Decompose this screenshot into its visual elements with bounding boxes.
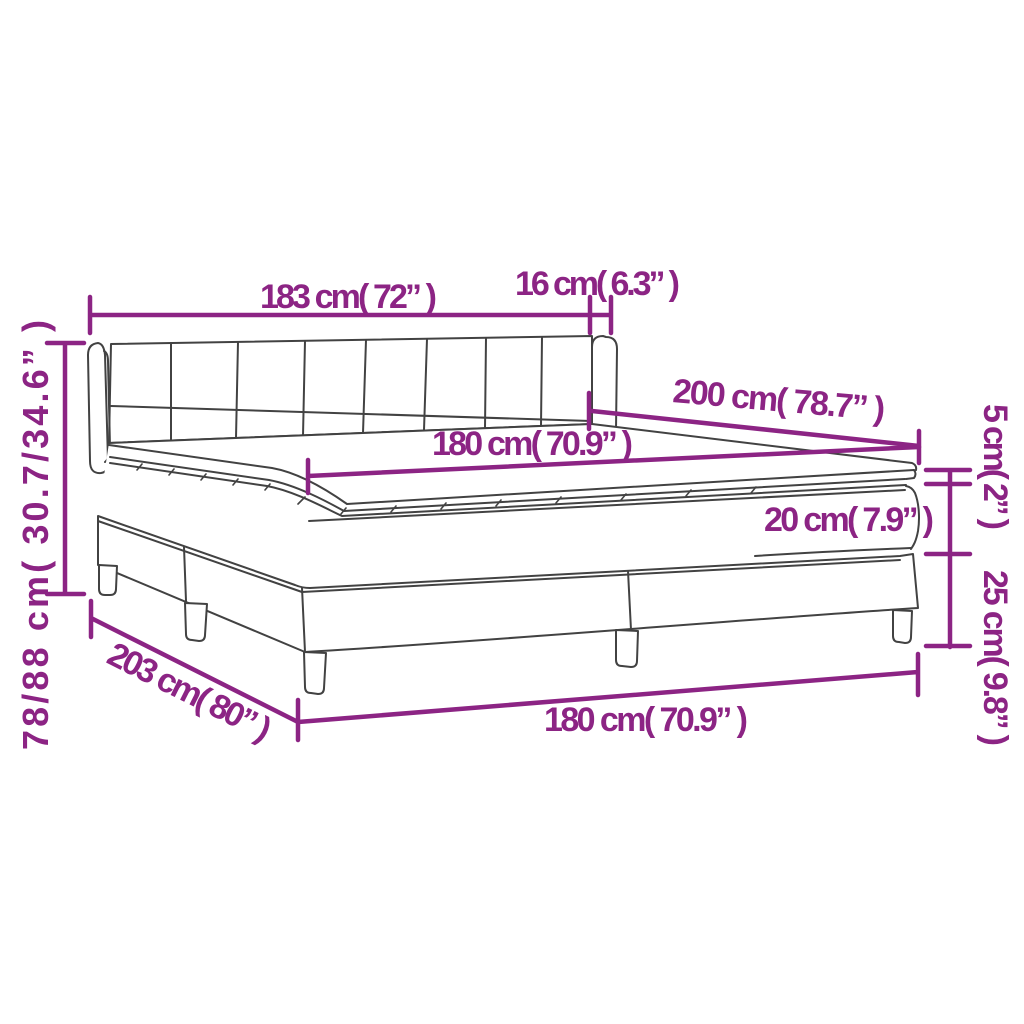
svg-text:183 cm( 72” ): 183 cm( 72” ): [260, 278, 437, 316]
svg-text:16 cm( 6.3” ): 16 cm( 6.3” ): [515, 265, 680, 303]
svg-text:25 cm( 9.8” ): 25 cm( 9.8” ): [976, 570, 1014, 746]
svg-text:20 cm( 7.9” ): 20 cm( 7.9” ): [764, 501, 934, 539]
svg-text:180 cm( 70.9” ): 180 cm( 70.9” ): [544, 701, 748, 739]
svg-text:200 cm( 78.7” ): 200 cm( 78.7” ): [671, 372, 887, 428]
svg-text:5 cm( 2” ): 5 cm( 2” ): [976, 404, 1014, 530]
svg-text:203 cm( 80” ): 203 cm( 80” ): [101, 635, 277, 749]
svg-text:78/88 cm( 30.7/34.6” ): 78/88 cm( 30.7/34.6” ): [15, 320, 56, 750]
svg-text:180 cm( 70.9” ): 180 cm( 70.9” ): [432, 425, 633, 463]
